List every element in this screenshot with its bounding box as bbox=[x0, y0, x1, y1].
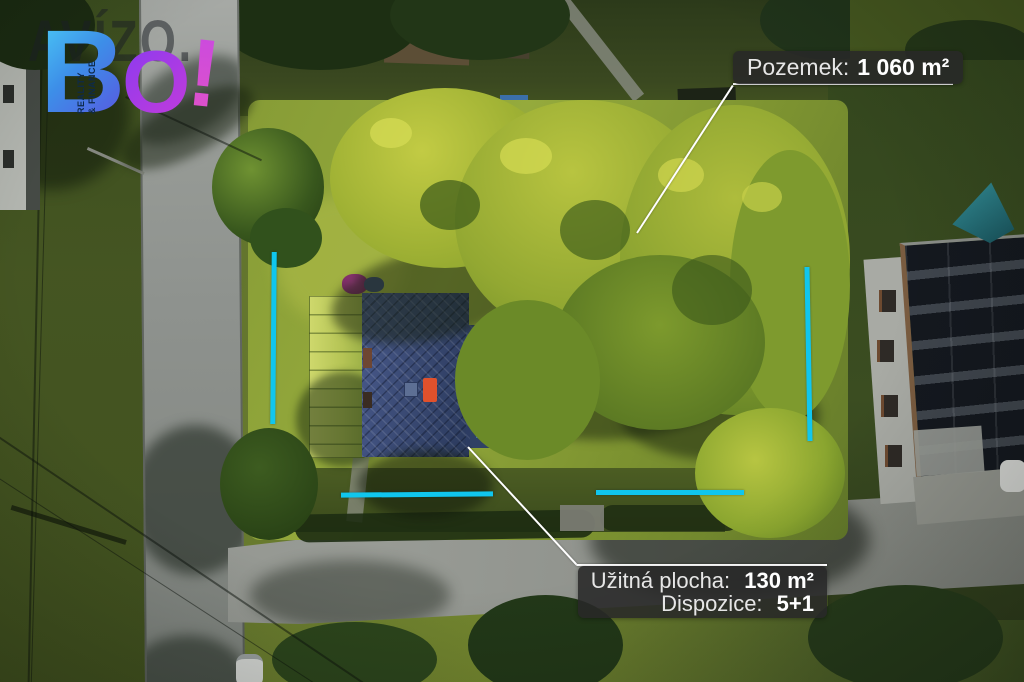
usable-area-row: Užitná plocha: 130 m² bbox=[591, 569, 814, 592]
canopy-dark-spot-1 bbox=[420, 180, 480, 230]
solar-house-window-1 bbox=[879, 290, 896, 312]
corner-house-window-1 bbox=[3, 85, 14, 103]
corner-house-roof bbox=[26, 55, 40, 210]
usable-area-label: Užitná plocha: bbox=[591, 568, 730, 593]
canopy-dark-spot-3 bbox=[672, 255, 752, 325]
logo-tagline: REALITY & FINANCE bbox=[76, 61, 98, 115]
usable-area-value: 130 m² bbox=[744, 568, 814, 593]
land-area-label: Pozemek: bbox=[747, 54, 849, 81]
bottom-right-tree bbox=[695, 408, 845, 538]
house-skylight bbox=[404, 382, 418, 397]
disposition-value: 5+1 bbox=[777, 591, 814, 616]
house-dormer-1 bbox=[363, 348, 372, 368]
solar-house-window-2 bbox=[877, 340, 894, 362]
logo-tagline-line2: & FINANCE bbox=[87, 61, 98, 115]
conifer-small bbox=[250, 208, 322, 268]
front-concrete bbox=[560, 505, 604, 531]
house-dormer-2 bbox=[363, 392, 372, 408]
house-chimney bbox=[423, 378, 437, 402]
house-deck-shadow bbox=[358, 450, 493, 518]
property-corner-bush bbox=[220, 428, 318, 540]
land-area-value: 1 060 m² bbox=[857, 54, 949, 81]
canopy-highlight-1 bbox=[370, 118, 412, 148]
solar-house-window-4 bbox=[885, 445, 902, 467]
logo-tagline-line1: REALITY bbox=[76, 61, 87, 115]
white-car-right bbox=[1000, 460, 1024, 492]
canopy-shade-2 bbox=[455, 300, 600, 460]
neighbour-driveway bbox=[913, 426, 984, 477]
disposition-row: Dispozice: 5+1 bbox=[661, 592, 814, 615]
land-area-badge: Pozemek: 1 060 m² bbox=[733, 51, 963, 84]
canopy-highlight-2 bbox=[500, 138, 552, 174]
canopy-dark-spot-2 bbox=[560, 200, 630, 260]
white-car-bottom bbox=[236, 654, 263, 682]
usable-area-badge: Užitná plocha: 130 m² Dispozice: 5+1 bbox=[578, 566, 827, 618]
solar-house-window-3 bbox=[881, 395, 898, 417]
corner-house-window-2 bbox=[3, 150, 14, 168]
aerial-photo: Pozemek: 1 060 m² Užitná plocha: 130 m² … bbox=[0, 0, 1024, 682]
disposition-label: Dispozice: bbox=[661, 591, 762, 616]
logo-letter-o: O bbox=[122, 38, 190, 126]
boundary-line-bottom-b bbox=[596, 490, 744, 495]
canopy-highlight-4 bbox=[742, 182, 782, 212]
bottom-tree-right bbox=[808, 585, 1003, 682]
road-shadow-bottom bbox=[139, 635, 245, 682]
